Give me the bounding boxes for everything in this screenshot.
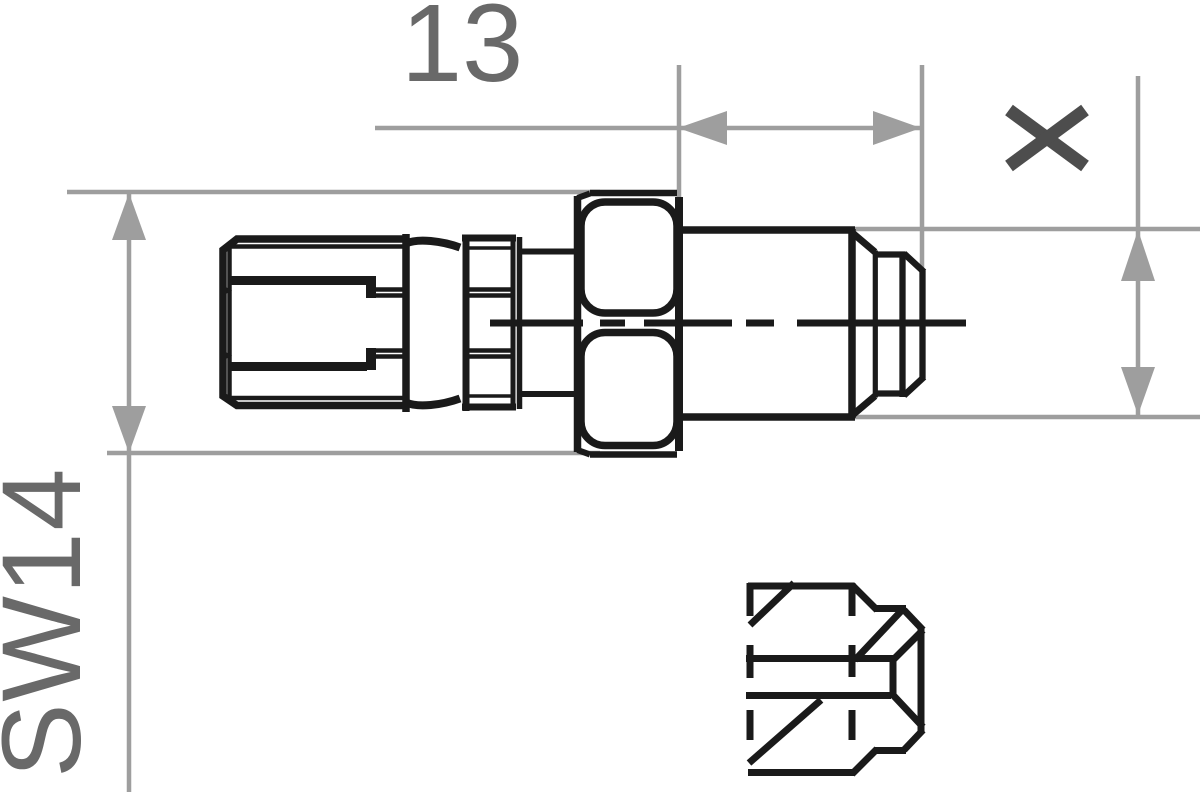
svg-text:SW14: SW14 [0,467,104,778]
svg-text:13: 13 [401,0,523,105]
